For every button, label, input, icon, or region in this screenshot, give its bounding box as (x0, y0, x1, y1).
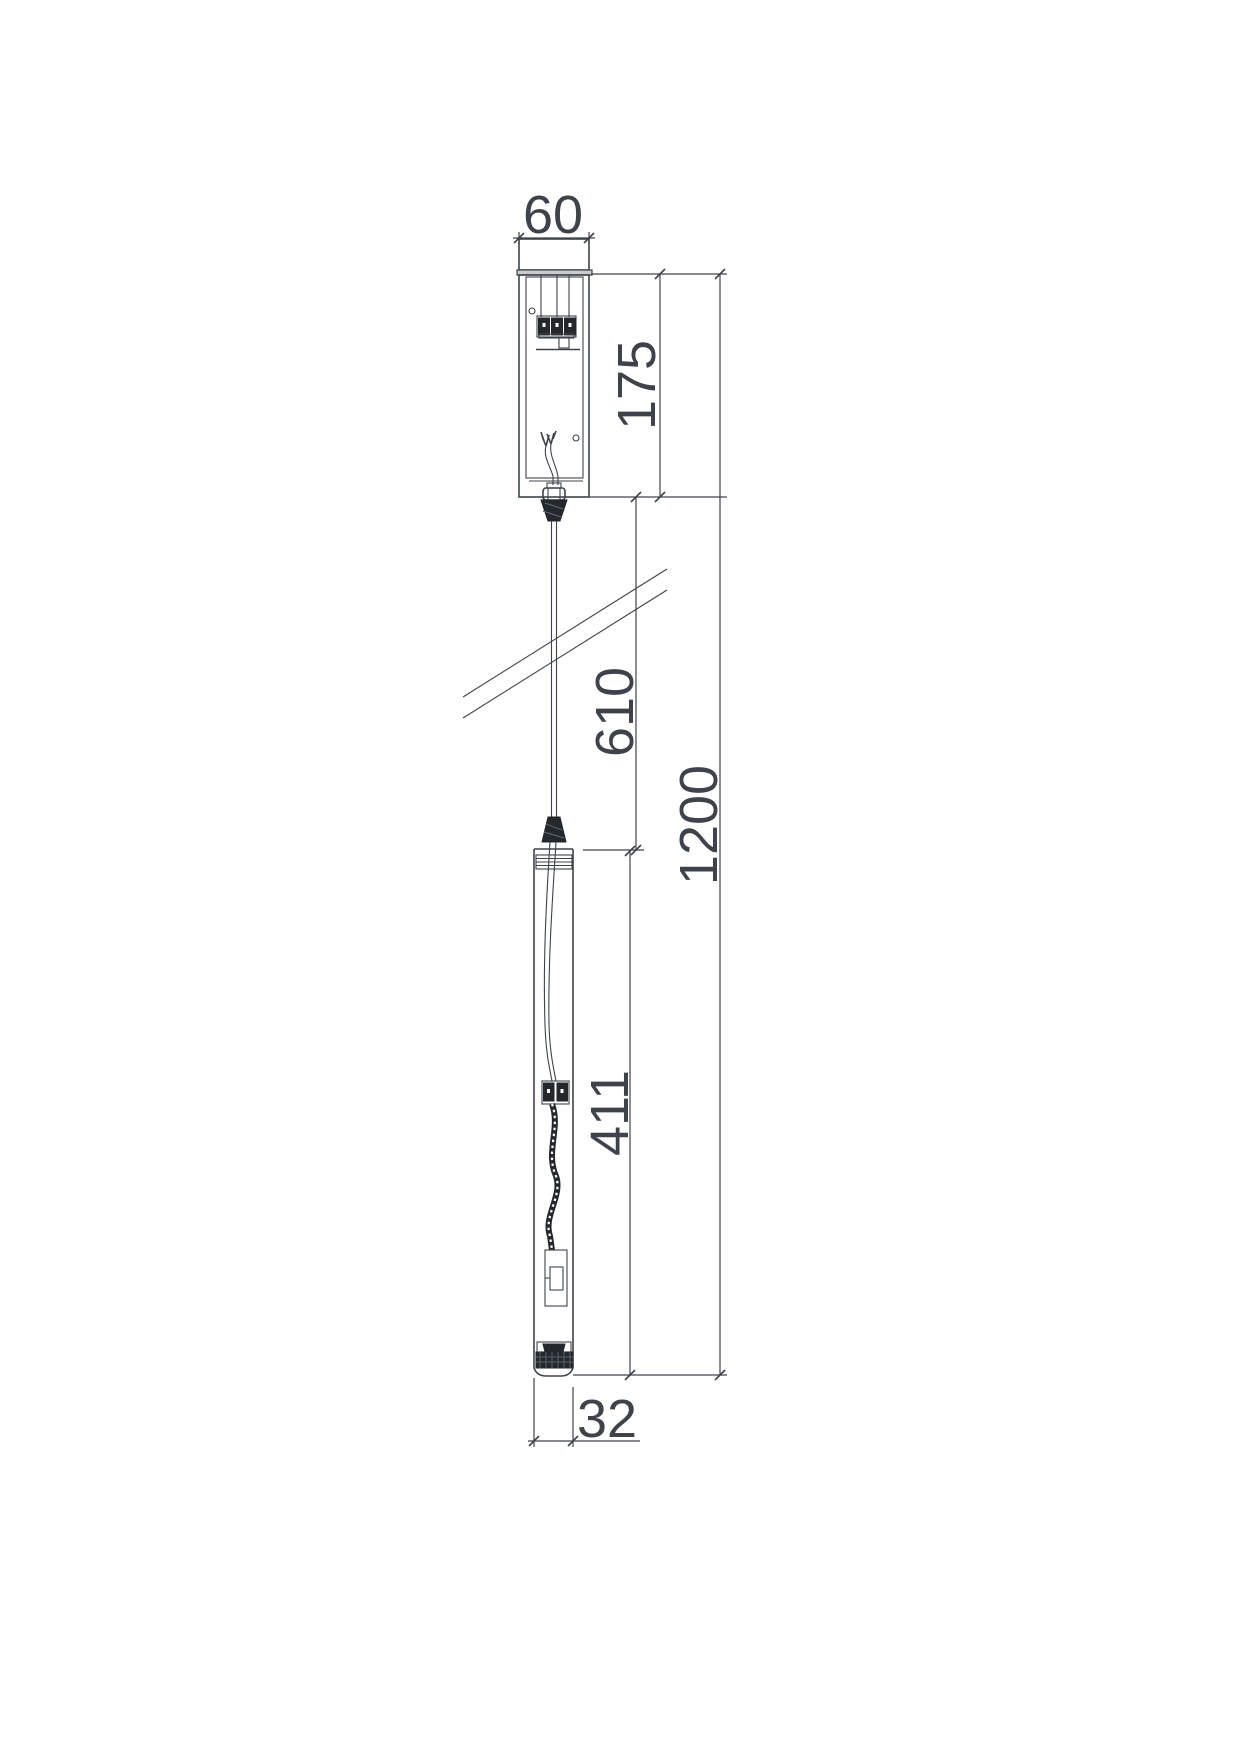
dimension-60-label: 60 (523, 185, 583, 245)
screw-icon (573, 435, 579, 441)
dimension-175: 175 (607, 269, 667, 502)
dimension-610-label: 610 (585, 667, 645, 757)
twisted-wire (548, 1104, 557, 1250)
dimension-32-label: 32 (577, 1389, 637, 1449)
wire-connector (542, 1081, 569, 1104)
technical-drawing: 60 175 610 411 1200 32 (0, 0, 1241, 1754)
pendant-tube (534, 842, 573, 1376)
drawing-canvas: 60 175 610 411 1200 32 (0, 0, 1241, 1754)
suspension-cable (552, 521, 557, 817)
screw-icon (529, 308, 535, 314)
supply-wires (541, 275, 569, 317)
cable-gland-top (541, 483, 567, 521)
dimension-411-label: 411 (580, 1070, 640, 1156)
dimension-411: 411 (580, 846, 640, 1380)
dimension-1200-label: 1200 (669, 765, 729, 885)
bottom-cap (536, 1342, 573, 1368)
dimension-60: 60 (513, 185, 595, 245)
terminal-block (537, 316, 576, 338)
tube-bottom-edge (534, 1368, 573, 1376)
canopy-inner-box (526, 277, 583, 478)
lead-wires (541, 431, 558, 485)
dimension-1200: 1200 (669, 269, 729, 1380)
ceiling-canopy (517, 239, 592, 497)
cable-gland-lamp (542, 817, 566, 842)
dimension-175-label: 175 (607, 340, 667, 430)
dimension-610: 610 (585, 492, 645, 855)
internal-wires (544, 842, 556, 1081)
dimension-32: 32 (528, 1378, 640, 1449)
driver-component (545, 1250, 567, 1306)
mounting-bracket (536, 337, 580, 350)
